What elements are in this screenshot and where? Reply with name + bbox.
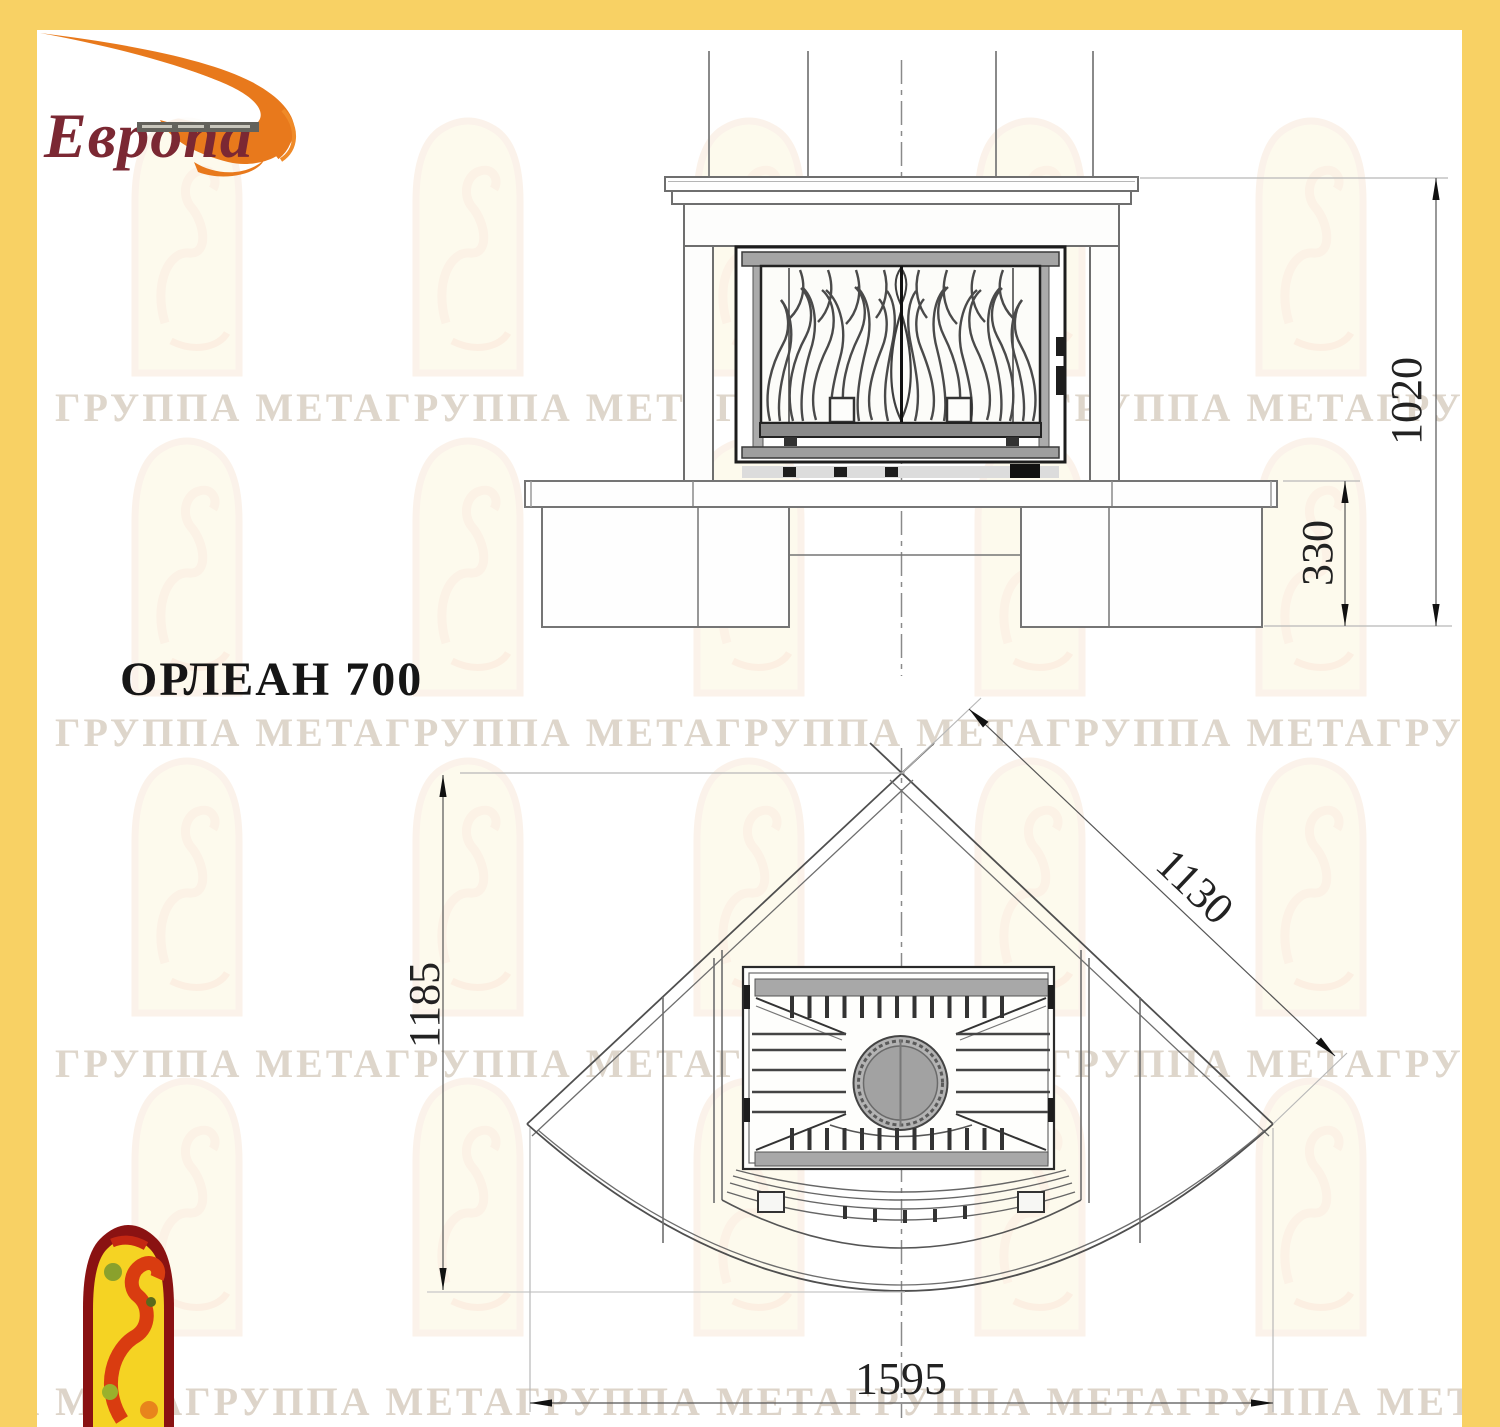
svg-text:Европа: Европа xyxy=(43,100,253,171)
svg-text:1185: 1185 xyxy=(400,962,449,1048)
svg-text:ГРУППА МЕТАГРУППА МЕТАГРУППА М: ГРУППА МЕТАГРУППА МЕТАГРУППА МЕТАГРУППА … xyxy=(55,710,1500,755)
svg-text:330: 330 xyxy=(1293,520,1342,586)
svg-text:1595: 1595 xyxy=(855,1353,947,1404)
svg-text:ППА МЕТАГРУППА МЕТАГРУППА МЕТА: ППА МЕТАГРУППА МЕТАГРУППА МЕТАГРУППА МЕТ… xyxy=(0,1379,1500,1424)
svg-text:1130: 1130 xyxy=(1147,839,1243,934)
svg-text:1020: 1020 xyxy=(1382,357,1431,445)
svg-text:ОРЛЕАН 700: ОРЛЕАН 700 xyxy=(120,653,423,706)
